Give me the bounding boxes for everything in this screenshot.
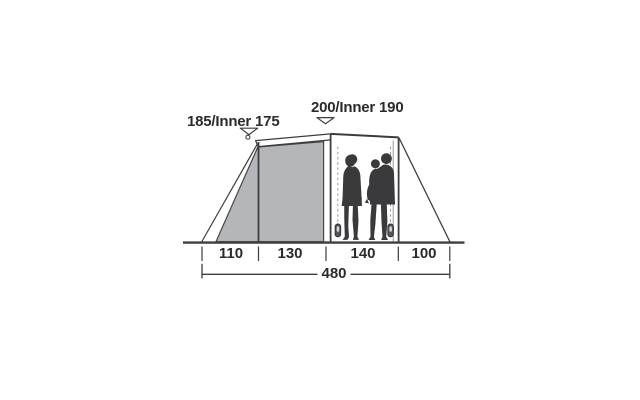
- tent-diagram-canvas: [0, 0, 640, 400]
- tent-dimension-diagram: 185/Inner 175 200/Inner 190 110 130 140 …: [0, 0, 640, 400]
- zipper-pull-icon: [335, 224, 341, 237]
- main-height-down-arrow-icon: [317, 118, 334, 124]
- rear-slope-line: [399, 138, 450, 242]
- segment-width-label: 140: [350, 246, 375, 262]
- porch-fabric-panel: [216, 142, 324, 242]
- woman-silhouette: [342, 154, 362, 240]
- zipper-pull-icon: [388, 224, 394, 237]
- segment-width-label: 110: [219, 246, 243, 262]
- segment-width-label: 100: [411, 246, 436, 262]
- main-roof-line: [331, 134, 399, 138]
- segment-width-label: 130: [277, 246, 302, 262]
- total-width-label: 480: [317, 265, 350, 282]
- porch-height-label: 185/Inner 175: [187, 113, 279, 130]
- guy-ring-icon: [246, 135, 250, 139]
- main-height-label: 200/Inner 190: [311, 99, 403, 116]
